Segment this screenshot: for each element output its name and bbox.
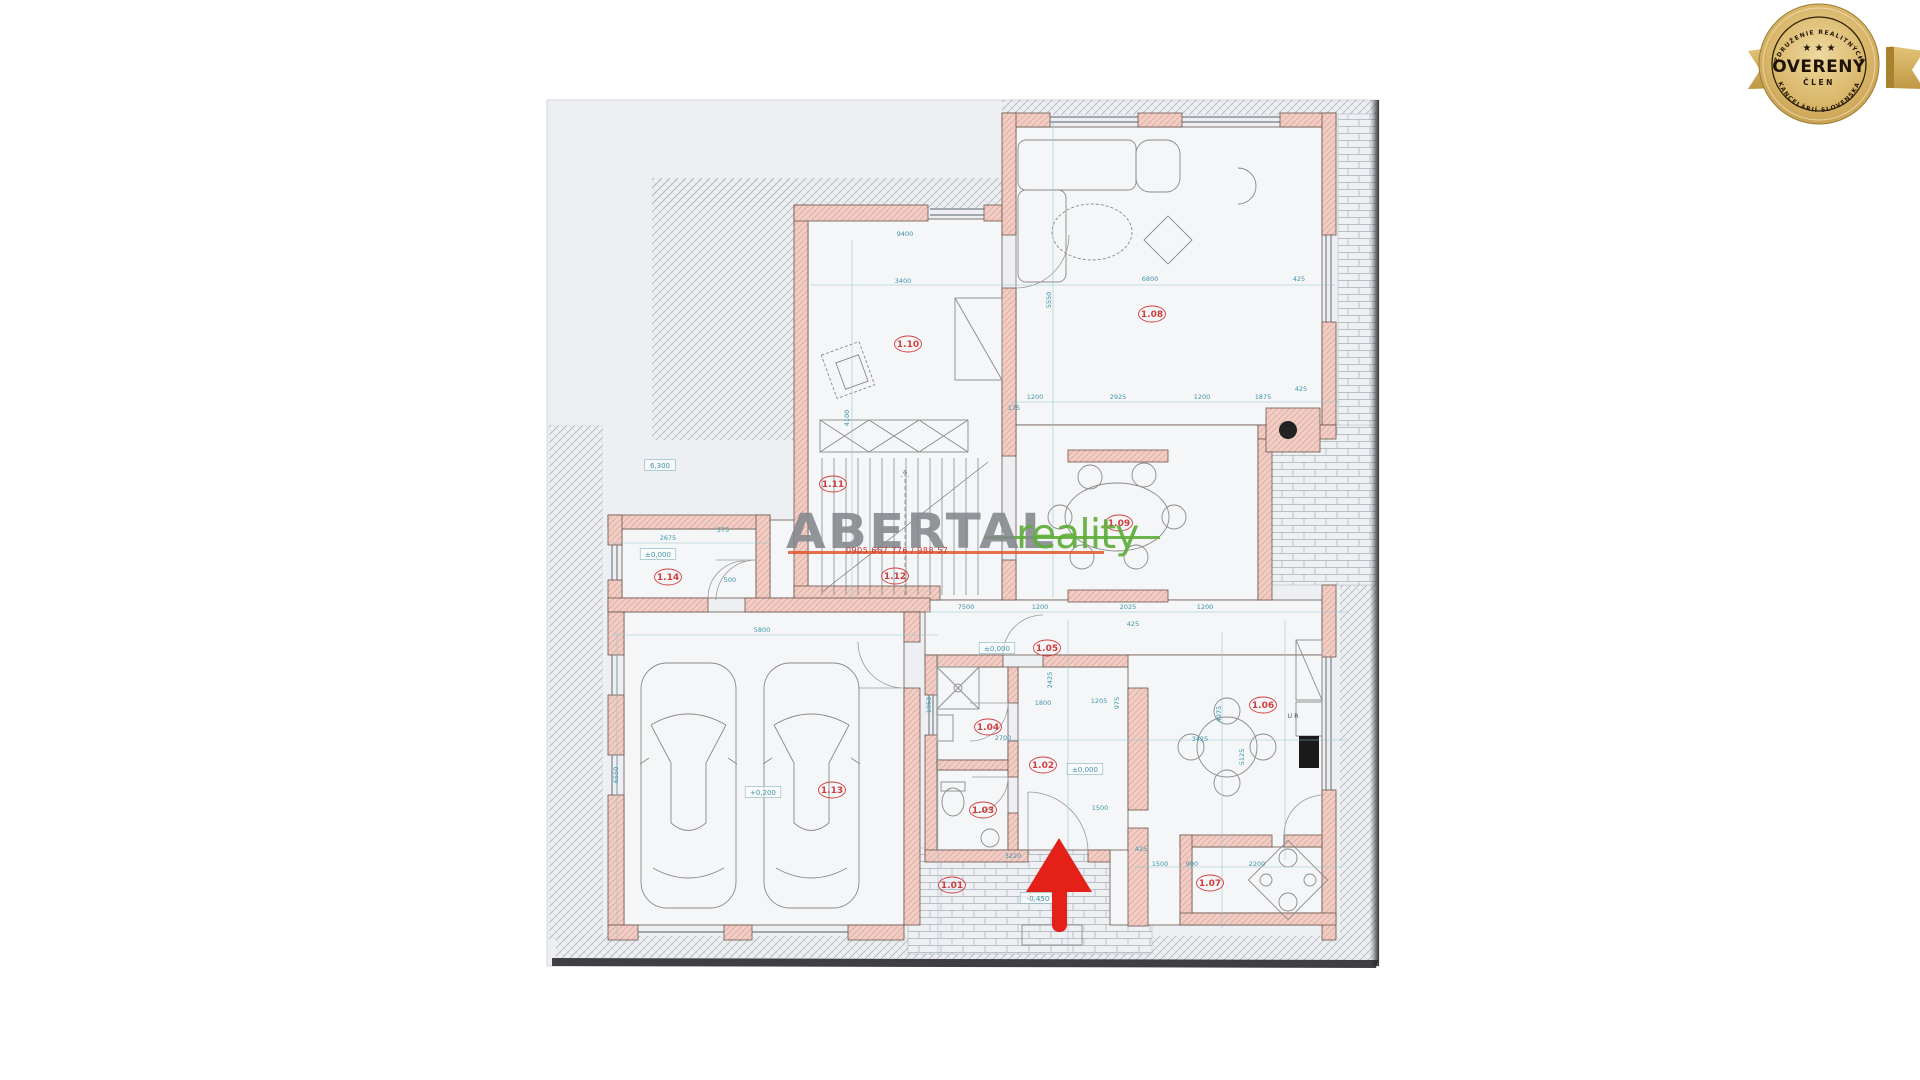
badge-seal: ZDRUŽENIE REALITNÝCH KANCELÁRIÍ SLOVENSK… <box>1759 4 1879 124</box>
svg-text:425: 425 <box>1293 275 1305 283</box>
badge-title: OVERENÝ <box>1772 55 1866 77</box>
svg-text:500: 500 <box>724 576 736 584</box>
svg-text:425: 425 <box>1135 845 1147 853</box>
svg-text:975: 975 <box>1113 697 1121 709</box>
svg-text:175: 175 <box>1008 404 1020 412</box>
svg-text:2700: 2700 <box>995 734 1012 742</box>
svg-text:900: 900 <box>1186 860 1198 868</box>
svg-text:7500: 7500 <box>958 603 975 611</box>
svg-text:425: 425 <box>1295 385 1307 393</box>
svg-text:6800: 6800 <box>1142 275 1159 283</box>
svg-text:3400: 3400 <box>895 277 912 285</box>
svg-text:1500: 1500 <box>1092 804 1109 812</box>
svg-text:2025: 2025 <box>1120 603 1137 611</box>
svg-text:4100: 4100 <box>843 410 851 427</box>
svg-text:1800: 1800 <box>1035 699 1052 707</box>
svg-text:3220: 3220 <box>1005 852 1022 860</box>
svg-text:2925: 2925 <box>1110 393 1127 401</box>
svg-text:+0,200: +0,200 <box>750 789 776 797</box>
svg-text:5800: 5800 <box>754 626 771 634</box>
svg-text:1.12: 1.12 <box>884 572 906 582</box>
svg-text:±0,000: ±0,000 <box>1072 766 1098 774</box>
svg-text:1200: 1200 <box>1197 603 1214 611</box>
svg-text:1.06: 1.06 <box>1252 701 1274 711</box>
svg-text:2425: 2425 <box>1046 672 1054 689</box>
svg-text:1200: 1200 <box>1027 393 1044 401</box>
svg-text:6,300: 6,300 <box>650 462 670 470</box>
svg-text:9400: 9400 <box>897 230 914 238</box>
svg-text:425: 425 <box>1127 620 1139 628</box>
svg-text:1.08: 1.08 <box>1141 310 1163 320</box>
svg-text:2675: 2675 <box>660 534 677 542</box>
svg-text:1.11: 1.11 <box>822 480 844 490</box>
svg-text:3425: 3425 <box>1192 735 1209 743</box>
svg-text:1.01: 1.01 <box>941 881 963 891</box>
svg-text:575: 575 <box>717 526 729 534</box>
svg-text:1.04: 1.04 <box>977 723 999 733</box>
svg-text:1205: 1205 <box>1091 697 1108 705</box>
watermark-brand-text-2: reality <box>1016 514 1138 555</box>
badge-subtitle: ČLEN <box>1803 78 1835 87</box>
page: 6,300±0,000+0,200±0,000±0,000-0,450 9400… <box>0 0 1920 1080</box>
svg-text:±0,000: ±0,000 <box>984 645 1010 653</box>
svg-text:1.13: 1.13 <box>821 786 843 796</box>
svg-text:1.02: 1.02 <box>1032 761 1054 771</box>
svg-text:1.10: 1.10 <box>897 340 919 350</box>
svg-text:1950: 1950 <box>925 697 933 714</box>
svg-text:-0,450: -0,450 <box>1027 895 1050 903</box>
svg-text:6550: 6550 <box>612 767 620 784</box>
badge-stars: ★ ★ ★ <box>1802 43 1835 54</box>
plan-annotations: U R <box>1287 712 1299 720</box>
watermark-phone: 0905 667 776 / 988 57 <box>846 546 948 555</box>
svg-text:1.05: 1.05 <box>1036 644 1058 654</box>
svg-text:5550: 5550 <box>1045 292 1053 309</box>
svg-text:1.14: 1.14 <box>657 573 679 583</box>
svg-text:1.07: 1.07 <box>1199 879 1221 889</box>
svg-text:1.03: 1.03 <box>972 806 994 816</box>
svg-text:1875: 1875 <box>1255 393 1272 401</box>
svg-text:1500: 1500 <box>1152 860 1169 868</box>
verified-badge: ZDRUŽENIE REALITNÝCH KANCELÁRIÍ SLOVENSK… <box>1742 0 1920 130</box>
svg-text:5125: 5125 <box>1238 749 1246 766</box>
svg-text:1200: 1200 <box>1032 603 1049 611</box>
svg-text:U R: U R <box>1287 712 1299 720</box>
svg-text:2200: 2200 <box>1249 860 1266 868</box>
svg-text:±0,000: ±0,000 <box>645 551 671 559</box>
svg-text:4975: 4975 <box>1215 706 1223 723</box>
svg-text:1200: 1200 <box>1194 393 1211 401</box>
